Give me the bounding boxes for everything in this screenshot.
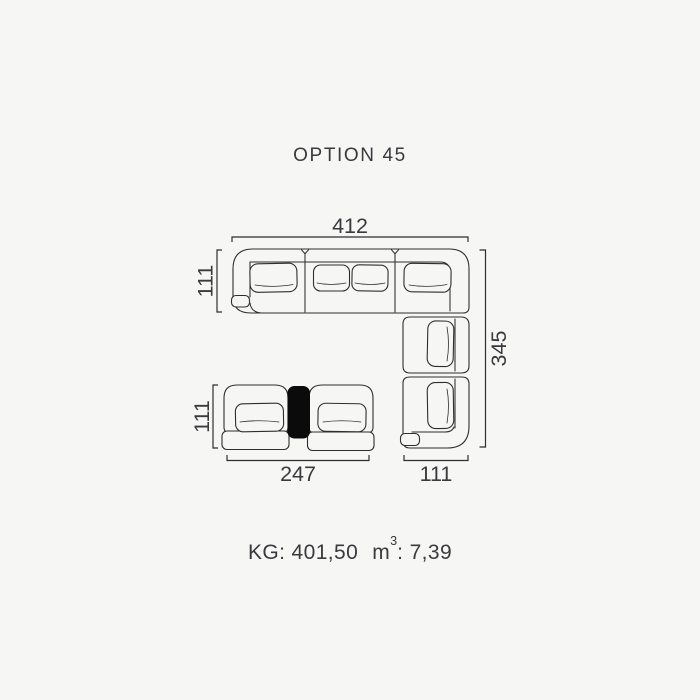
back-cushion: [314, 265, 350, 291]
armchair-right-seat-front: [308, 432, 375, 451]
left-arm-foot: [232, 296, 250, 308]
weight-volume-info: KG: 401,50m3: 7,39: [0, 540, 700, 565]
sofa-right-column: [401, 317, 470, 448]
dim-line-total-depth: [480, 250, 486, 447]
dim-line-left-depth: [217, 250, 222, 312]
back-cushion: [427, 382, 454, 428]
console-module: [288, 387, 310, 439]
seat-cushion: [235, 403, 283, 432]
bottom-arm-foot: [401, 434, 420, 446]
sofa-top-row: [232, 249, 470, 313]
dim-label-total-width: 412: [332, 214, 368, 238]
sofa-top-view-diagram: 412 111 345 111 247 111: [0, 0, 700, 700]
dim-line-end-section-width: [404, 455, 468, 461]
armchair-left-seat-front: [222, 431, 289, 450]
back-cushion: [404, 263, 451, 292]
dim-label-end-section-width: 111: [420, 462, 453, 486]
armchair-group: [222, 385, 374, 451]
seat-cushion: [318, 403, 366, 432]
dim-label-armchair-depth: 111: [190, 400, 214, 433]
dim-label-armchair-group-width: 247: [280, 462, 316, 486]
dim-label-left-depth: 111: [194, 265, 218, 298]
back-cushion: [250, 263, 298, 292]
back-cushion: [427, 321, 454, 367]
back-cushion: [352, 265, 388, 292]
dim-label-total-depth: 345: [487, 331, 511, 367]
weight-value: KG: 401,50: [248, 541, 358, 564]
dim-line-armchair-group-width: [227, 455, 369, 461]
spec-sheet: OPTION 45: [0, 0, 700, 700]
volume-value: m3: 7,39: [372, 541, 452, 564]
